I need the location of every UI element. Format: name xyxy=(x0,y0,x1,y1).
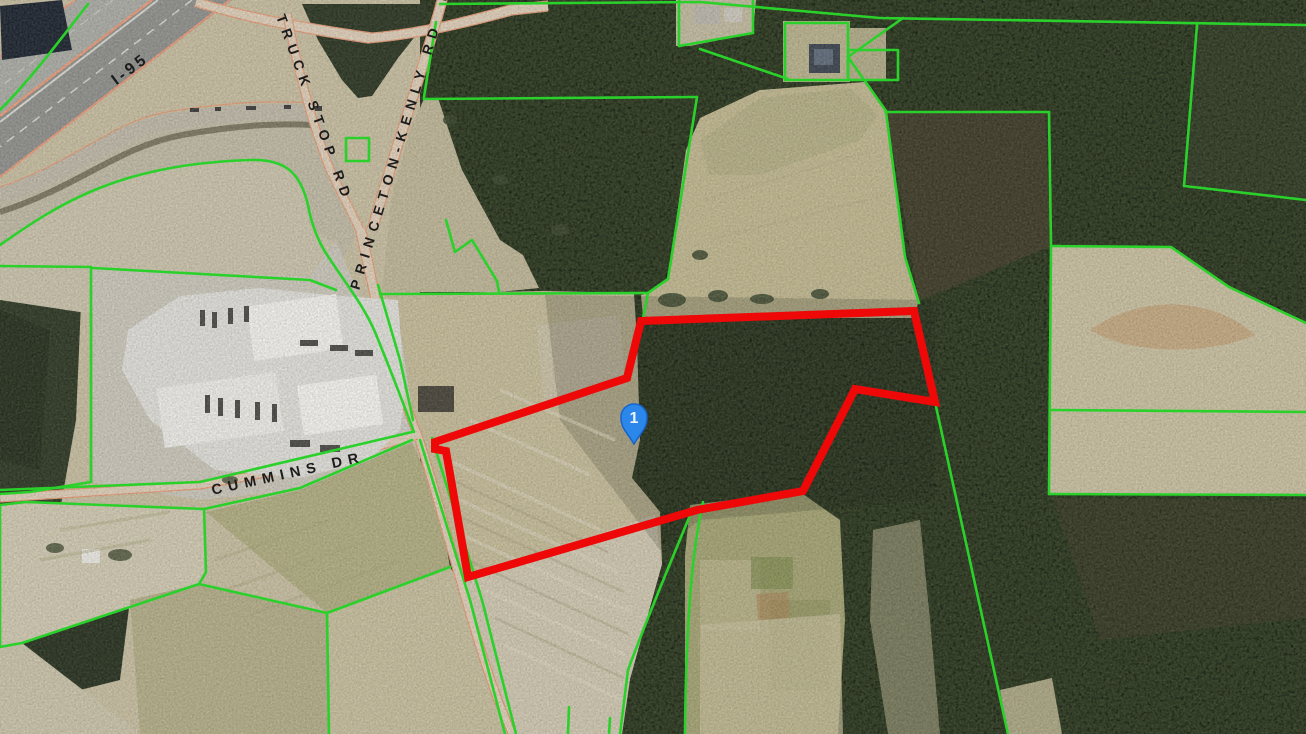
svg-text:1: 1 xyxy=(630,410,639,427)
